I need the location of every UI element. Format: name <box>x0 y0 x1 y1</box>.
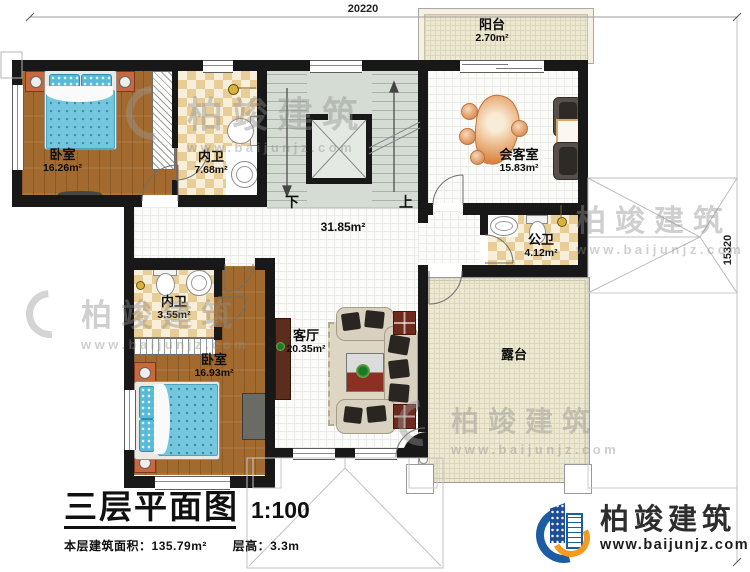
room-label-terrace: 露台 <box>480 348 548 363</box>
brand-logo-icon <box>534 497 592 561</box>
terrace-step-right <box>564 464 592 494</box>
balcony-sliding-door <box>460 60 544 73</box>
sofa-cushion <box>341 312 361 331</box>
elevator-cab <box>312 120 366 178</box>
window <box>355 448 397 460</box>
floor-area-label: 本层建筑面积： <box>64 539 152 553</box>
pillow <box>139 419 155 452</box>
watermark: 柏竣建筑 www.baijunjz.com <box>576 196 744 257</box>
plan-title: 三层平面图 <box>64 490 239 523</box>
watermark-logo-icon <box>16 280 84 348</box>
side-table <box>393 404 416 429</box>
terrace-step-left <box>406 464 434 494</box>
wall <box>178 195 267 207</box>
wall <box>418 277 428 432</box>
plant <box>356 364 370 378</box>
sink <box>186 270 212 296</box>
wall <box>265 258 275 488</box>
brand-name: 柏竣建筑 <box>600 505 749 537</box>
title-underline <box>64 526 236 529</box>
floor-height-label: 层高： <box>233 539 271 553</box>
sofa-cushion <box>388 383 409 403</box>
stair-down-label: 下 <box>285 192 299 212</box>
wall <box>418 60 428 223</box>
side-table <box>393 311 416 335</box>
wall <box>418 265 428 277</box>
floor-height-value: 3.3m <box>270 539 299 553</box>
window <box>12 85 24 170</box>
window <box>124 390 136 450</box>
bed-sheet <box>154 384 170 454</box>
wall <box>578 60 588 277</box>
window <box>203 60 233 73</box>
nightstand <box>25 71 46 92</box>
room-label-bedroom1: 卧室 16.26m² <box>25 148 100 174</box>
sofa-cushion <box>364 310 385 329</box>
room-label-public-bath: 公卫 4.12m² <box>505 233 577 259</box>
room-label-bedroom2: 卧室 16.93m² <box>178 353 250 379</box>
stool <box>461 103 478 120</box>
wall <box>214 266 222 297</box>
wall <box>12 195 142 207</box>
room-label-living: 客厅 20.35m² <box>270 329 342 355</box>
room-label-bath1: 内卫 7.68m² <box>178 150 244 176</box>
wall <box>257 60 267 207</box>
plan-scale: 1:100 <box>251 498 310 523</box>
sofa-cushion <box>388 334 411 355</box>
wall <box>480 203 488 235</box>
floor-plan-sheet: 阳台 2.70m² 卧室 16.26m² 内卫 7.68m² 会客室 15.83… <box>0 0 750 572</box>
sofa-cushion <box>343 406 363 424</box>
room-label-bath2: 内卫 3.55m² <box>140 295 208 321</box>
title-block: 三层平面图 1:100 本层建筑面积：135.79m² 层高：3.3m <box>64 490 310 554</box>
stair-flight-right <box>372 74 418 202</box>
wall <box>214 327 222 340</box>
dimension-top: 20220 <box>330 3 396 15</box>
toilet <box>227 118 254 144</box>
stair-flight-left <box>267 74 307 202</box>
elevator-door-gap <box>328 114 350 120</box>
light-fixture <box>228 84 239 95</box>
toilet <box>156 273 175 296</box>
sofa-cushion <box>366 405 387 423</box>
floor-area-value: 135.79m² <box>152 539 207 553</box>
stool <box>511 120 528 137</box>
brand-logo: 柏竣建筑 www.baijunjz.com <box>534 497 749 561</box>
terrace-inner-line <box>421 280 586 479</box>
window <box>310 60 362 73</box>
light-fixture <box>136 281 145 290</box>
wall <box>462 265 588 277</box>
stair-up-label: 上 <box>399 192 413 212</box>
room-label-hall: 31.85m² <box>306 221 380 234</box>
light-fixture <box>557 217 567 227</box>
nightstand <box>114 71 135 92</box>
nightstand <box>134 362 156 383</box>
wall <box>335 448 355 458</box>
wall <box>172 180 178 195</box>
wall <box>428 203 433 215</box>
pillow <box>139 386 155 419</box>
room-label-balcony: 阳台 2.70m² <box>452 18 532 44</box>
wall <box>124 258 225 270</box>
dimension-right: 15320 <box>722 225 734 275</box>
sofa-cushion <box>388 359 410 379</box>
wall <box>172 71 178 148</box>
room-label-reception: 会客室 15.83m² <box>480 148 558 174</box>
stool <box>459 128 476 145</box>
window <box>293 448 335 460</box>
brand-url: www.baijunjz.com <box>600 537 749 553</box>
